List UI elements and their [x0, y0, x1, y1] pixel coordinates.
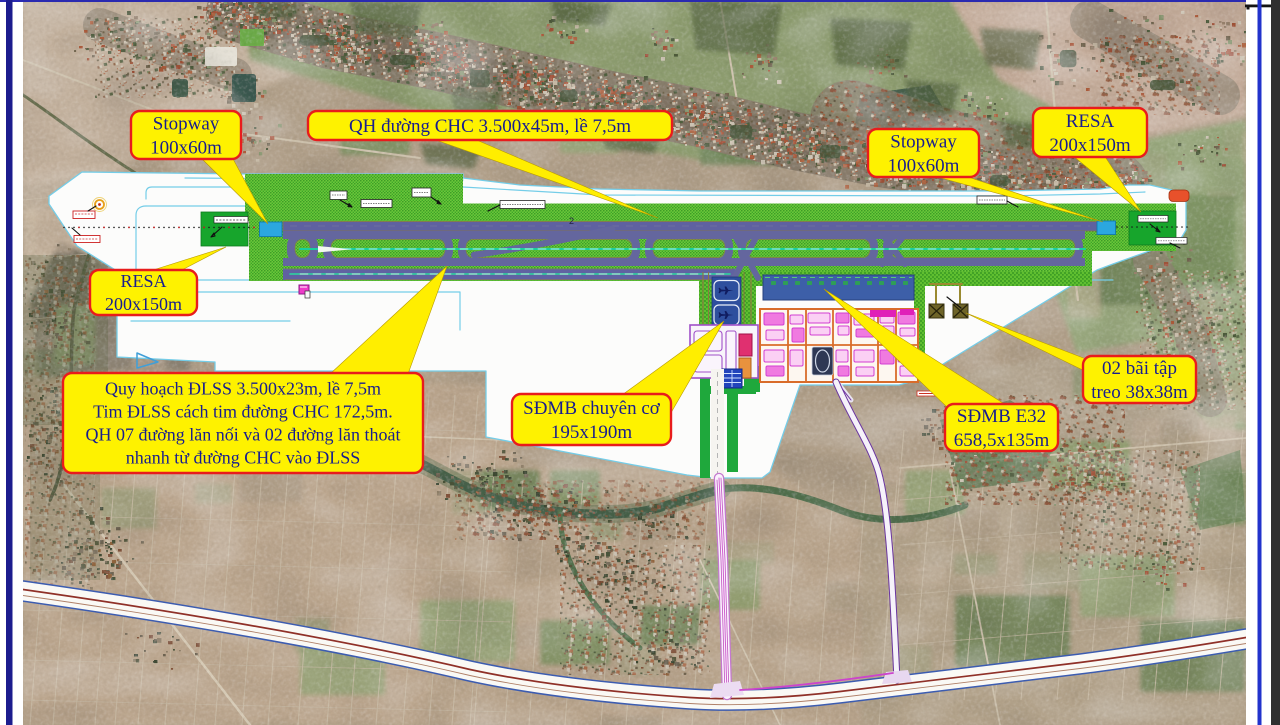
svg-text:658,5x135m: 658,5x135m — [954, 430, 1050, 451]
svg-text:RESA: RESA — [1066, 111, 1115, 132]
svg-text:QH 07 đường lăn nối và 02 đườn: QH 07 đường lăn nối và 02 đường lăn thoá… — [85, 425, 400, 445]
svg-text:Quy hoạch ĐLSS 3.500x23m, lề 7: Quy hoạch ĐLSS 3.500x23m, lề 7,5m — [105, 379, 381, 399]
svg-text:195x190m: 195x190m — [551, 422, 633, 443]
svg-text:Stopway: Stopway — [890, 132, 957, 153]
svg-text:SĐMB chuyên cơ: SĐMB chuyên cơ — [523, 398, 661, 419]
svg-text:RESA: RESA — [120, 271, 166, 291]
svg-text:100x60m: 100x60m — [150, 138, 222, 159]
svg-text:treo 38x38m: treo 38x38m — [1091, 382, 1188, 403]
svg-text:100x60m: 100x60m — [888, 156, 960, 177]
svg-text:02 bãi tập: 02 bãi tập — [1102, 358, 1177, 379]
svg-text:Stopway: Stopway — [153, 114, 220, 135]
svg-text:QH đường CHC 3.500x45m, lề 7,5: QH đường CHC 3.500x45m, lề 7,5m — [349, 116, 631, 137]
svg-text:200x150m: 200x150m — [105, 294, 182, 314]
svg-text:nhanh từ đường CHC vào ĐLSS: nhanh từ đường CHC vào ĐLSS — [126, 448, 361, 468]
svg-text:200x150m: 200x150m — [1049, 135, 1131, 156]
svg-text:Tim ĐLSS cách tim đường CHC 17: Tim ĐLSS cách tim đường CHC 172,5m. — [93, 402, 393, 422]
svg-text:2: 2 — [569, 216, 574, 226]
svg-text:SĐMB E32: SĐMB E32 — [957, 406, 1046, 427]
